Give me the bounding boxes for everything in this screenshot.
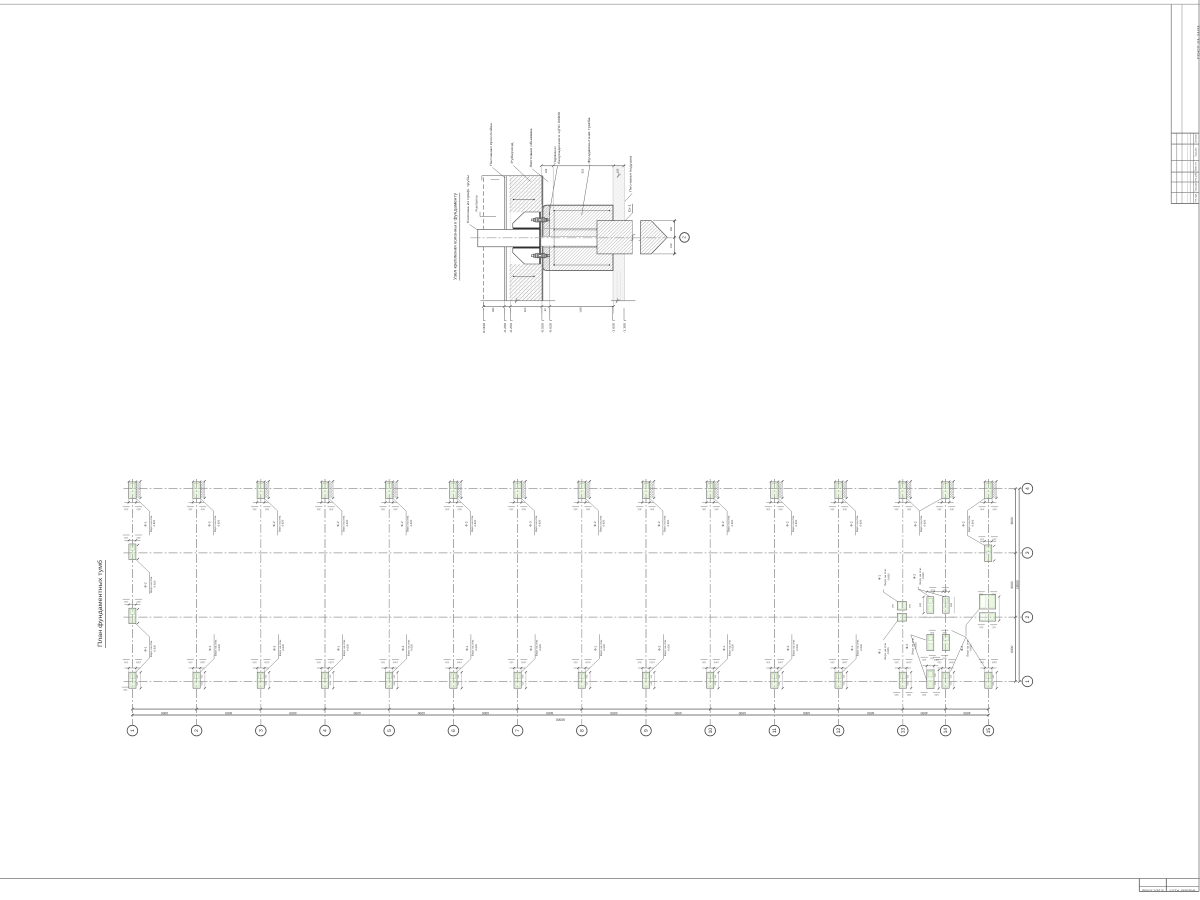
svg-text:1000: 1000 xyxy=(585,660,591,663)
svg-text:300: 300 xyxy=(252,508,257,511)
svg-text:1000: 1000 xyxy=(777,660,783,663)
svg-text:-0.620: -0.620 xyxy=(732,643,735,651)
svg-text:600: 600 xyxy=(521,508,526,511)
svg-text:500: 500 xyxy=(950,602,953,607)
svg-text:500: 500 xyxy=(124,660,129,663)
svg-text:11: 11 xyxy=(772,728,778,733)
svg-text:500: 500 xyxy=(991,593,996,596)
svg-text:Ф-1: Ф-1 xyxy=(877,649,881,654)
svg-text:1000: 1000 xyxy=(841,660,847,663)
svg-text:1000: 1000 xyxy=(392,660,398,663)
svg-text:300: 300 xyxy=(766,508,771,511)
svg-text:500: 500 xyxy=(937,660,942,663)
svg-text:250: 250 xyxy=(979,538,984,541)
svg-text:4000: 4000 xyxy=(920,711,927,715)
svg-text:-0.620: -0.620 xyxy=(731,519,734,527)
svg-text:6000: 6000 xyxy=(674,711,681,715)
svg-text:500: 500 xyxy=(188,660,193,663)
svg-text:500: 500 xyxy=(992,538,997,541)
svg-text:-0.620: -0.620 xyxy=(915,642,918,650)
svg-text:500: 500 xyxy=(909,603,912,607)
svg-text:6000: 6000 xyxy=(803,711,810,715)
svg-text:Ф-2: Ф-2 xyxy=(914,521,918,526)
svg-text:Рубероид: Рубероид xyxy=(510,142,514,163)
svg-text:500: 500 xyxy=(586,674,589,678)
svg-text:600: 600 xyxy=(136,508,141,511)
svg-text:6000: 6000 xyxy=(1010,581,1014,588)
svg-text:300: 300 xyxy=(980,508,985,511)
svg-text:500: 500 xyxy=(907,674,910,678)
svg-text:500: 500 xyxy=(714,681,717,685)
svg-text:6000: 6000 xyxy=(739,711,746,715)
svg-text:300: 300 xyxy=(445,508,450,511)
svg-text:500: 500 xyxy=(766,660,771,663)
svg-text:4: 4 xyxy=(323,729,329,732)
svg-text:Узел крепления колонны к фунда: Узел крепления колонны к фундаменту xyxy=(453,192,458,280)
svg-text:500: 500 xyxy=(842,674,845,678)
svg-text:7: 7 xyxy=(515,729,521,732)
svg-text:-0.620: -0.620 xyxy=(217,519,220,527)
svg-text:-0.620: -0.620 xyxy=(282,519,285,527)
svg-text:1000: 1000 xyxy=(948,660,954,663)
svg-text:600: 600 xyxy=(524,307,527,312)
svg-text:Ф-2: Ф-2 xyxy=(272,521,276,526)
svg-text:3: 3 xyxy=(1025,551,1031,554)
svg-text:12: 12 xyxy=(836,728,842,734)
svg-text:4: 4 xyxy=(1025,487,1031,490)
svg-text:1000: 1000 xyxy=(906,660,912,663)
svg-text:-0.620: -0.620 xyxy=(153,644,156,652)
svg-text:8: 8 xyxy=(579,729,585,732)
svg-text:600: 600 xyxy=(992,508,997,511)
svg-text:18000: 18000 xyxy=(1016,580,1020,589)
svg-text:500: 500 xyxy=(922,658,927,661)
svg-text:500: 500 xyxy=(136,536,141,539)
svg-text:Ф-2: Ф-2 xyxy=(272,645,276,650)
svg-text:500: 500 xyxy=(136,674,139,678)
svg-text:Ф-1: Ф-1 xyxy=(722,645,726,650)
svg-text:300: 300 xyxy=(830,508,835,511)
svg-text:Ф-2: Ф-2 xyxy=(658,645,662,650)
svg-text:-0.620: -0.620 xyxy=(410,519,413,527)
svg-text:-0.620: -0.620 xyxy=(538,519,541,527)
svg-text:6000: 6000 xyxy=(867,711,874,715)
svg-text:500: 500 xyxy=(393,674,396,678)
svg-text:162: 162 xyxy=(943,588,948,591)
svg-text:Подп. дата: Подп. дата xyxy=(1195,182,1198,191)
svg-text:500: 500 xyxy=(521,681,524,685)
svg-text:1000: 1000 xyxy=(520,660,526,663)
svg-text:600: 600 xyxy=(650,508,655,511)
svg-text:500: 500 xyxy=(200,681,203,685)
svg-text:600: 600 xyxy=(457,508,462,511)
svg-text:Ск-1: Ск-1 xyxy=(627,204,631,212)
svg-text:300: 300 xyxy=(637,508,642,511)
svg-text:500: 500 xyxy=(509,660,514,663)
svg-text:Ф-2: Ф-2 xyxy=(401,645,405,650)
svg-text:Ф-1: Ф-1 xyxy=(465,645,469,650)
svg-text:300: 300 xyxy=(573,508,578,511)
svg-text:150: 150 xyxy=(930,588,935,591)
svg-text:500: 500 xyxy=(919,602,922,607)
svg-text:-0.620: -0.620 xyxy=(796,643,799,651)
svg-text:80000: 80000 xyxy=(556,718,565,722)
svg-text:1: 1 xyxy=(130,729,136,732)
svg-text:500: 500 xyxy=(573,660,578,663)
svg-text:150: 150 xyxy=(670,226,673,231)
svg-text:-0.620: -0.620 xyxy=(153,519,156,527)
svg-text:500: 500 xyxy=(930,631,935,634)
svg-text:9: 9 xyxy=(644,729,650,732)
svg-text:Песчаная прослойка: Песчаная прослойка xyxy=(489,123,493,166)
svg-text:13: 13 xyxy=(900,728,906,734)
svg-text:-0.620: -0.620 xyxy=(859,519,862,527)
svg-text:Ф-2: Ф-2 xyxy=(785,521,789,526)
svg-text:040: 040 xyxy=(979,626,984,629)
svg-text:500: 500 xyxy=(701,660,706,663)
svg-text:500: 500 xyxy=(650,674,653,678)
svg-text:300: 300 xyxy=(380,508,385,511)
svg-text:300: 300 xyxy=(701,508,706,511)
svg-text:500: 500 xyxy=(894,693,899,696)
svg-text:1000: 1000 xyxy=(199,660,205,663)
svg-text:6000: 6000 xyxy=(1010,645,1014,652)
svg-text:-0.605: -0.605 xyxy=(971,519,974,527)
svg-text:600: 600 xyxy=(393,508,398,511)
svg-text:6: 6 xyxy=(451,729,457,732)
svg-text:500: 500 xyxy=(907,681,910,685)
svg-text:047: 047 xyxy=(991,626,996,629)
svg-text:План фундаментных тумб: План фундаментных тумб xyxy=(97,559,104,647)
svg-text:Ф-2: Ф-2 xyxy=(905,644,909,649)
svg-text:Ф-2: Ф-2 xyxy=(721,521,725,526)
svg-text:-0.620: -0.620 xyxy=(603,643,606,651)
svg-text:10: 10 xyxy=(708,728,714,734)
svg-text:-0.620: -0.620 xyxy=(411,643,414,651)
svg-text:15: 15 xyxy=(986,728,992,734)
svg-text:Ф-1: Ф-1 xyxy=(850,645,854,650)
svg-text:Ф-2: Ф-2 xyxy=(593,521,597,526)
svg-text:3: 3 xyxy=(258,729,264,732)
svg-text:1000: 1000 xyxy=(456,660,462,663)
svg-text:1000: 1000 xyxy=(135,660,141,663)
svg-text:14: 14 xyxy=(943,728,949,734)
svg-text:600: 600 xyxy=(329,508,334,511)
svg-text:Колонна из проф. трубы: Колонна из проф. трубы xyxy=(466,174,470,223)
svg-text:300: 300 xyxy=(894,508,899,511)
svg-text:-0.620: -0.620 xyxy=(282,643,285,651)
svg-text:ГОСТ 21.1101: ГОСТ 21.1101 xyxy=(1197,25,1200,59)
svg-text:Ф-1: Ф-1 xyxy=(208,645,212,650)
svg-text:Фундаментная тумба: Фундаментная тумба xyxy=(587,117,591,163)
svg-text:6000: 6000 xyxy=(353,711,360,715)
svg-text:500: 500 xyxy=(136,681,139,685)
svg-text:1000: 1000 xyxy=(713,660,719,663)
svg-text:2: 2 xyxy=(1025,615,1031,618)
svg-text:150: 150 xyxy=(670,243,673,248)
svg-text:Ф-2: Ф-2 xyxy=(962,521,966,526)
svg-text:6000: 6000 xyxy=(1010,517,1014,524)
svg-text:150: 150 xyxy=(930,656,935,659)
svg-text:-0.620: -0.620 xyxy=(474,519,477,527)
svg-text:-0.620: -0.620 xyxy=(548,323,552,333)
svg-text:Ф-2: Ф-2 xyxy=(208,521,212,526)
svg-text:4000: 4000 xyxy=(963,711,970,715)
svg-text:Ф-2: Ф-2 xyxy=(144,582,148,587)
svg-text:-0.250: -0.250 xyxy=(509,323,513,333)
svg-text:Инв. подл.: Инв. подл. xyxy=(1195,193,1198,202)
svg-text:Ф-1: Ф-1 xyxy=(143,521,147,526)
svg-text:Ф-1: Ф-1 xyxy=(337,645,341,650)
svg-text:500: 500 xyxy=(329,681,332,685)
svg-text:-0.605: -0.605 xyxy=(887,573,890,581)
svg-text:Согласов.: Согласов. xyxy=(1195,134,1198,143)
svg-text:Ф-2: Ф-2 xyxy=(960,646,964,651)
svg-text:6000: 6000 xyxy=(161,711,168,715)
svg-text:600: 600 xyxy=(842,508,847,511)
svg-text:500: 500 xyxy=(992,681,995,685)
svg-text:6000: 6000 xyxy=(610,711,617,715)
svg-text:2: 2 xyxy=(194,729,200,732)
svg-text:500: 500 xyxy=(252,660,257,663)
svg-text:Ф-2: Ф-2 xyxy=(464,521,468,526)
svg-text:-1.100: -1.100 xyxy=(623,323,627,333)
svg-text:625: 625 xyxy=(581,168,584,173)
svg-text:-0.620: -0.620 xyxy=(153,580,156,588)
svg-text:Инв. дубл.: Инв. дубл. xyxy=(1195,172,1198,181)
svg-text:500: 500 xyxy=(894,660,899,663)
svg-text:6000: 6000 xyxy=(546,711,553,715)
svg-text:1: 1 xyxy=(1025,680,1031,683)
svg-text:Формат А1х3: Формат А1х3 xyxy=(1169,888,1196,891)
svg-text:Ф-3: Ф-3 xyxy=(529,521,533,526)
svg-text:600: 600 xyxy=(585,508,590,511)
svg-text:Взам. инв.: Взам. инв. xyxy=(1195,162,1198,171)
svg-text:Ф-2: Ф-2 xyxy=(850,521,854,526)
svg-text:Ф-2: Ф-2 xyxy=(786,645,790,650)
svg-text:500: 500 xyxy=(992,674,995,678)
svg-text:500: 500 xyxy=(457,681,460,685)
svg-text:150: 150 xyxy=(124,536,129,539)
svg-text:300: 300 xyxy=(509,508,514,511)
svg-text:500: 500 xyxy=(380,660,385,663)
svg-text:500: 500 xyxy=(650,681,653,685)
svg-text:Ф-1: Ф-1 xyxy=(593,645,597,650)
svg-text:1000: 1000 xyxy=(991,660,997,663)
svg-text:1160: 1160 xyxy=(580,306,583,312)
svg-text:300: 300 xyxy=(316,508,321,511)
svg-text:Песчаная подушка: Песчаная подушка xyxy=(629,155,633,191)
svg-text:Ф-2: Ф-2 xyxy=(912,574,916,579)
svg-text:Ф-1: Ф-1 xyxy=(878,575,882,580)
svg-text:Ф-1: Ф-1 xyxy=(144,646,148,651)
svg-text:-0.620: -0.620 xyxy=(667,519,670,527)
svg-text:600: 600 xyxy=(906,508,911,511)
svg-text:500: 500 xyxy=(316,660,321,663)
svg-text:6000: 6000 xyxy=(289,711,296,715)
svg-text:300: 300 xyxy=(188,508,193,511)
svg-text:500: 500 xyxy=(586,681,589,685)
svg-text:1000: 1000 xyxy=(264,660,270,663)
svg-text:6000: 6000 xyxy=(418,711,425,715)
svg-text:500: 500 xyxy=(942,656,947,659)
svg-text:500: 500 xyxy=(830,660,835,663)
svg-text:Ф-2: Ф-2 xyxy=(336,521,340,526)
svg-text:500: 500 xyxy=(637,660,642,663)
svg-text:-0.550: -0.550 xyxy=(541,323,545,333)
svg-text:Подп. дата: Подп. дата xyxy=(1195,147,1198,156)
svg-text:600: 600 xyxy=(949,508,954,511)
svg-text:-0.620: -0.620 xyxy=(539,643,542,651)
svg-text:500: 500 xyxy=(200,674,203,678)
svg-text:300: 300 xyxy=(124,508,129,511)
svg-text:100: 100 xyxy=(545,168,548,173)
svg-text:Рым болтов: Рым болтов xyxy=(475,195,479,211)
svg-text:-0.620: -0.620 xyxy=(795,519,798,527)
svg-text:500: 500 xyxy=(714,674,717,678)
svg-text:-0.620: -0.620 xyxy=(346,643,349,651)
svg-text:-0.620: -0.620 xyxy=(218,643,221,651)
svg-text:500: 500 xyxy=(842,681,845,685)
svg-text:500: 500 xyxy=(778,681,781,685)
svg-text:1000: 1000 xyxy=(649,660,655,663)
svg-text:-0.620: -0.620 xyxy=(475,643,478,651)
svg-text:250: 250 xyxy=(892,603,895,607)
svg-text:380: 380 xyxy=(492,307,495,312)
svg-text:ж.укл_копир: ж.укл_копир xyxy=(1141,888,1164,891)
svg-text:500: 500 xyxy=(265,674,268,678)
svg-text:-0.620: -0.620 xyxy=(667,643,670,651)
svg-text:150: 150 xyxy=(979,593,984,596)
svg-text:500: 500 xyxy=(521,674,524,678)
svg-text:-0.620: -0.620 xyxy=(924,519,927,527)
svg-text:-0.620: -0.620 xyxy=(970,644,973,652)
svg-text:500: 500 xyxy=(265,681,268,685)
svg-text:300: 300 xyxy=(922,693,927,696)
svg-text:500: 500 xyxy=(934,693,939,696)
svg-text:Ф-2: Ф-2 xyxy=(400,521,404,526)
svg-text:1000: 1000 xyxy=(328,660,334,663)
svg-text:600: 600 xyxy=(264,508,269,511)
svg-text:150: 150 xyxy=(942,631,947,634)
svg-text:6000: 6000 xyxy=(225,711,232,715)
svg-text:300: 300 xyxy=(937,508,942,511)
svg-text:-0.620: -0.620 xyxy=(346,519,349,527)
svg-text:-0.200: -0.200 xyxy=(503,323,507,333)
svg-text:0.000: 0.000 xyxy=(482,323,486,333)
svg-text:2: 2 xyxy=(682,236,687,239)
svg-text:500: 500 xyxy=(778,674,781,678)
svg-text:500: 500 xyxy=(949,674,952,678)
svg-text:600: 600 xyxy=(200,508,205,511)
svg-text:500: 500 xyxy=(949,681,952,685)
svg-text:-0.620: -0.620 xyxy=(922,572,925,580)
svg-text:300: 300 xyxy=(906,693,911,696)
svg-text:5: 5 xyxy=(387,729,393,732)
svg-text:-0.605: -0.605 xyxy=(887,647,890,655)
svg-text:500: 500 xyxy=(934,673,937,677)
svg-text:500: 500 xyxy=(445,660,450,663)
svg-text:150: 150 xyxy=(124,600,129,603)
svg-text:200: 200 xyxy=(123,688,128,691)
svg-text:Листовая обшивка: Листовая обшивка xyxy=(529,128,533,167)
svg-text:Ф-2: Ф-2 xyxy=(657,521,661,526)
svg-text:600: 600 xyxy=(778,508,783,511)
svg-text:6000: 6000 xyxy=(482,711,489,715)
svg-text:100: 100 xyxy=(617,168,620,173)
svg-text:500: 500 xyxy=(393,681,396,685)
svg-text:безусадочного ЦПС М300: безусадочного ЦПС М300 xyxy=(557,112,561,164)
svg-text:500: 500 xyxy=(457,674,460,678)
svg-text:500: 500 xyxy=(329,674,332,678)
svg-text:-0.620: -0.620 xyxy=(860,643,863,651)
svg-text:-1.020: -1.020 xyxy=(611,323,615,333)
svg-text:40: 40 xyxy=(544,308,547,311)
svg-text:Ф-2: Ф-2 xyxy=(529,645,533,650)
svg-text:600: 600 xyxy=(714,508,719,511)
svg-text:-0.620: -0.620 xyxy=(603,519,606,527)
svg-text:500: 500 xyxy=(136,600,141,603)
